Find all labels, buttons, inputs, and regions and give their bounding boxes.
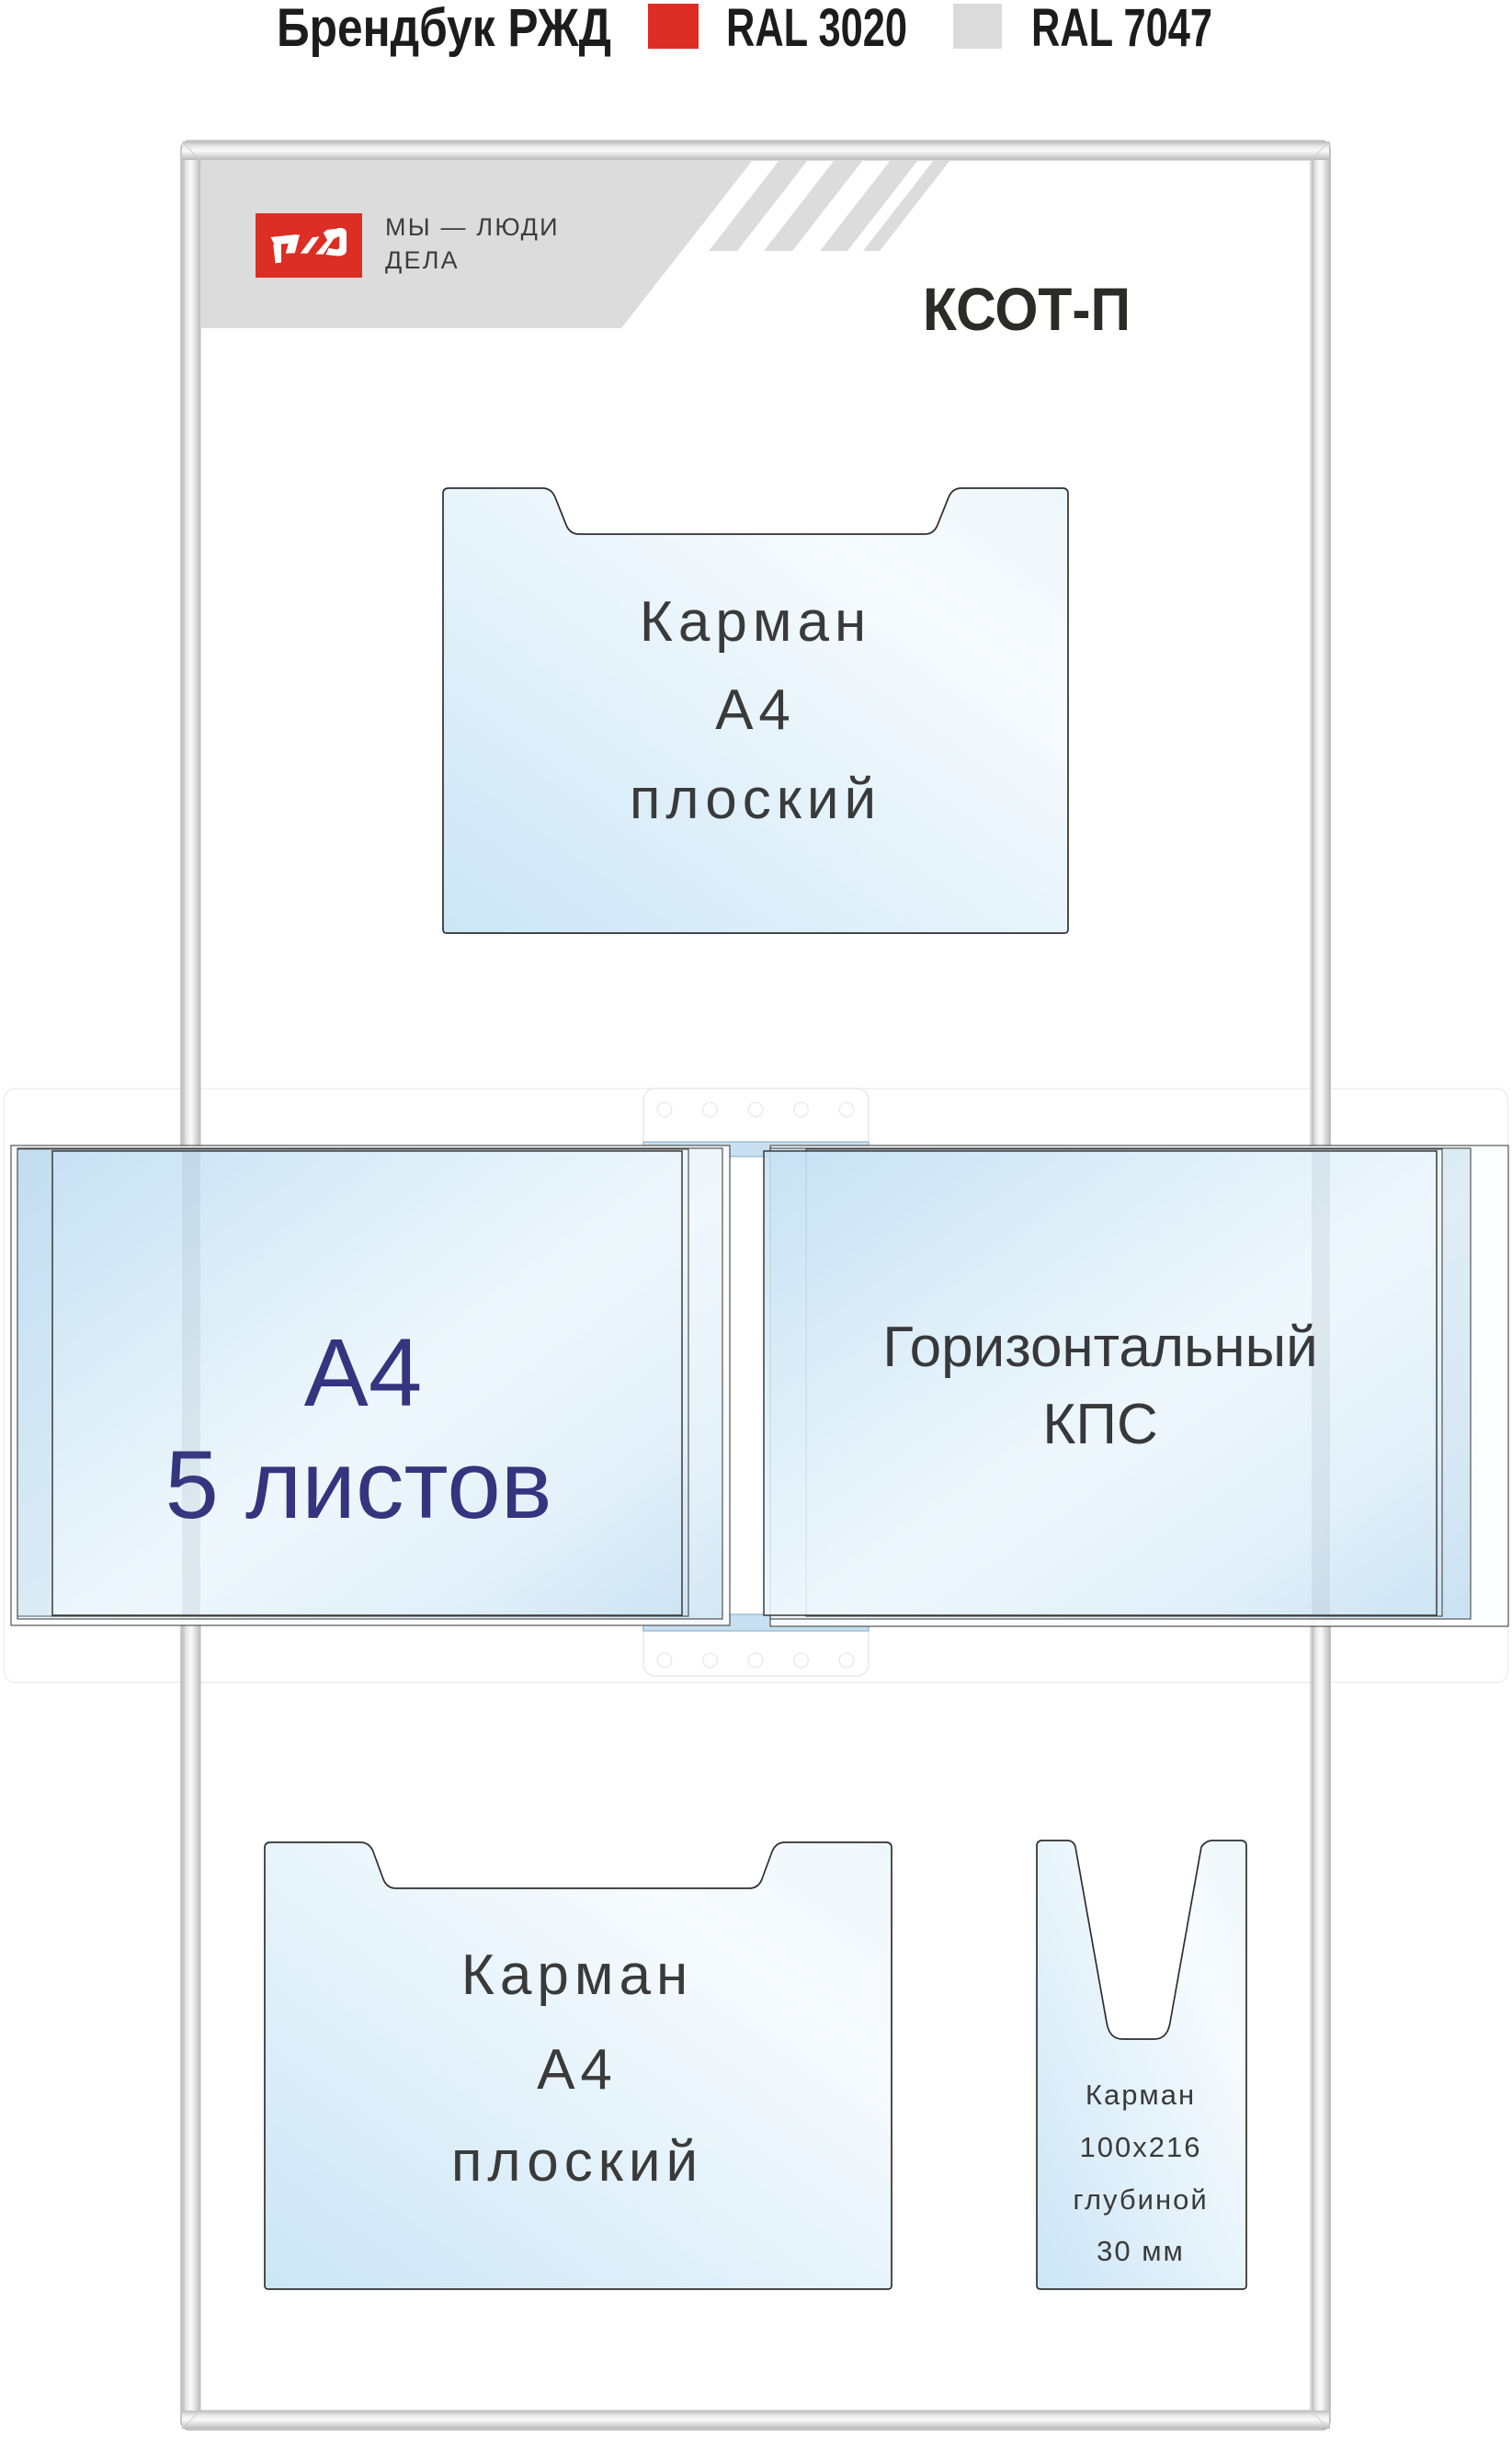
svg-text:А4: А4 — [304, 1319, 422, 1427]
svg-text:Брендбук РЖД: Брендбук РЖД — [277, 0, 611, 58]
svg-text:RAL 3020: RAL 3020 — [726, 0, 907, 58]
svg-text:100х216: 100х216 — [1080, 2131, 1202, 2163]
svg-text:Горизонтальный: Горизонтальный — [882, 1316, 1318, 1379]
svg-text:МЫ — ЛЮДИ: МЫ — ЛЮДИ — [385, 213, 560, 241]
svg-text:плоский: плоский — [630, 768, 881, 831]
svg-text:КСОТ-П: КСОТ-П — [923, 275, 1131, 343]
svg-text:Карман: Карман — [1086, 2079, 1196, 2111]
svg-text:30 мм: 30 мм — [1097, 2235, 1185, 2267]
svg-text:Карман: Карман — [461, 1943, 693, 2007]
svg-text:А4: А4 — [715, 678, 796, 742]
svg-text:глубиной: глубиной — [1073, 2183, 1208, 2216]
svg-text:КПС: КПС — [1042, 1393, 1157, 1456]
svg-text:плоский: плоский — [451, 2130, 703, 2194]
svg-text:ДЕЛА: ДЕЛА — [385, 246, 460, 274]
svg-text:RAL 7047: RAL 7047 — [1031, 0, 1212, 58]
svg-text:Карман: Карман — [640, 590, 871, 654]
svg-text:А4: А4 — [537, 2038, 618, 2102]
svg-text:5 листов: 5 листов — [165, 1431, 551, 1539]
